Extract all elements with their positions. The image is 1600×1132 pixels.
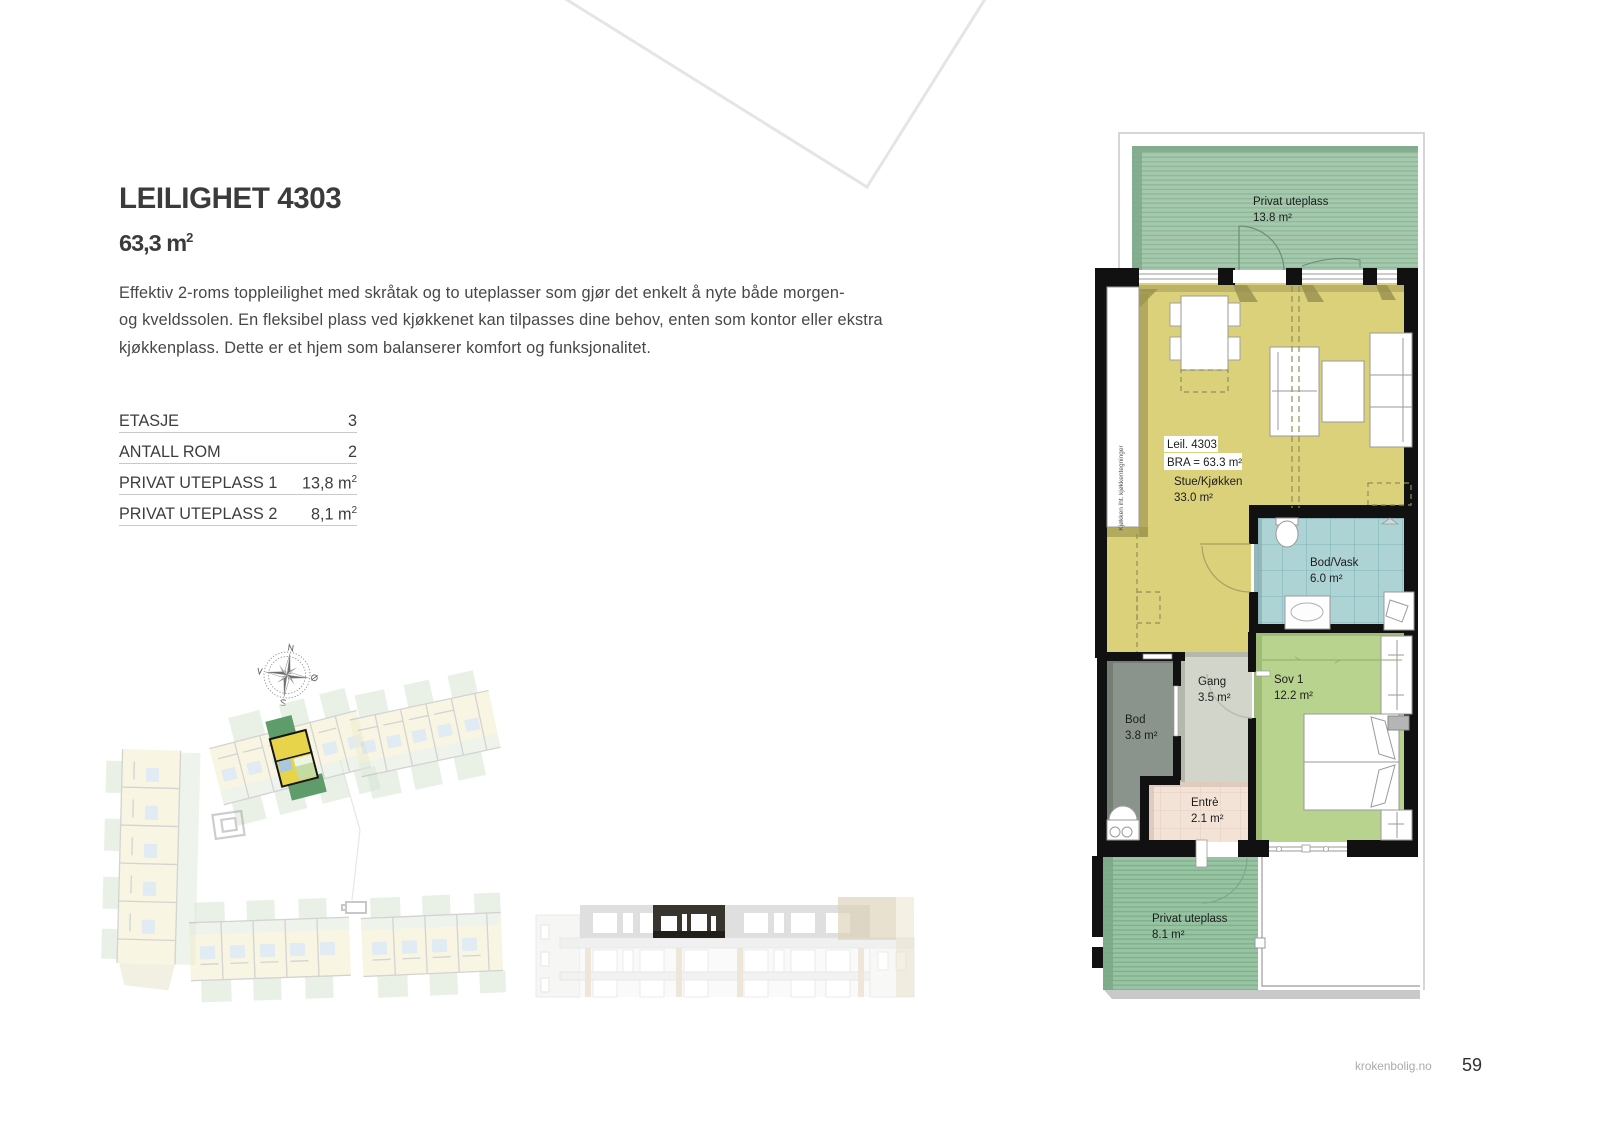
svg-text:2.1 m²: 2.1 m² bbox=[1191, 813, 1224, 825]
svg-text:Entrè: Entrè bbox=[1191, 797, 1219, 809]
svg-text:13.8 m²: 13.8 m² bbox=[1253, 212, 1292, 224]
svg-text:Stue/Kjøkken: Stue/Kjøkken bbox=[1174, 476, 1242, 488]
svg-text:6.0 m²: 6.0 m² bbox=[1310, 573, 1343, 585]
svg-text:BRA = 63.3 m²: BRA = 63.3 m² bbox=[1167, 457, 1242, 469]
svg-text:Leil. 4303: Leil. 4303 bbox=[1167, 439, 1217, 451]
svg-text:8.1 m²: 8.1 m² bbox=[1152, 929, 1185, 941]
svg-text:Privat uteplass: Privat uteplass bbox=[1253, 196, 1329, 208]
svg-text:Kjøkken iht. kjøkkentegninger: Kjøkken iht. kjøkkentegninger bbox=[1118, 445, 1125, 531]
svg-text:3.8 m²: 3.8 m² bbox=[1125, 730, 1158, 742]
svg-text:Sov 1: Sov 1 bbox=[1274, 674, 1303, 686]
svg-text:33.0 m²: 33.0 m² bbox=[1174, 492, 1213, 504]
svg-text:3.5 m²: 3.5 m² bbox=[1198, 692, 1231, 704]
svg-text:12.2 m²: 12.2 m² bbox=[1274, 690, 1313, 702]
svg-text:Gang: Gang bbox=[1198, 676, 1226, 688]
svg-text:Bod/Vask: Bod/Vask bbox=[1310, 557, 1359, 569]
svg-text:Bod: Bod bbox=[1125, 714, 1145, 726]
svg-text:Privat uteplass: Privat uteplass bbox=[1152, 913, 1228, 925]
